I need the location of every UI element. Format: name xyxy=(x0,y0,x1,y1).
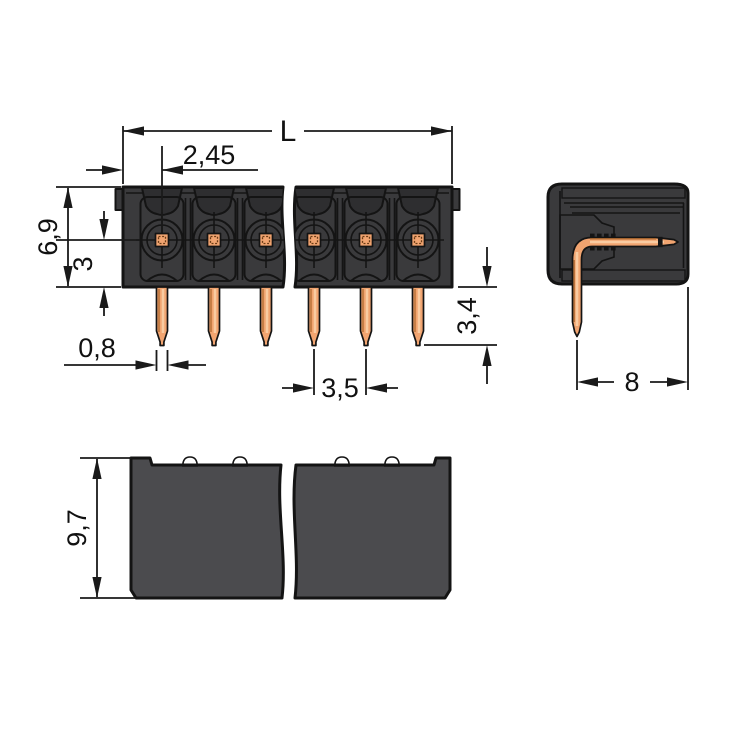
technical-drawing-page: L 2,45 6,9 3 0,8 3,5 xyxy=(0,0,750,750)
dim-label-housing-depth: 8 xyxy=(624,367,639,397)
side-view xyxy=(548,184,688,337)
solder-pin-5 xyxy=(361,287,372,346)
front-view xyxy=(116,187,460,346)
dimension-housing-depth: 8 xyxy=(577,287,688,397)
dimension-total-length: L xyxy=(123,115,452,184)
dim-label-pin-pitch: 3,5 xyxy=(321,373,359,403)
pin-tip-band xyxy=(658,237,663,247)
solder-pin-3 xyxy=(261,287,272,346)
bottom-housing-right-half xyxy=(294,458,450,598)
solder-pin-1 xyxy=(157,287,168,346)
bottom-view xyxy=(131,457,450,598)
dimension-overall-height: 9,7 xyxy=(62,458,136,598)
dimension-pin-pitch: 3,5 xyxy=(282,349,398,403)
connector-technical-drawing: L 2,45 6,9 3 0,8 3,5 xyxy=(0,0,750,750)
dimension-pin-width: 0,8 xyxy=(64,333,206,371)
bottom-housing-left-half xyxy=(131,458,283,598)
solder-pin-6 xyxy=(413,287,424,346)
dim-label-pin-protrusion: 3,4 xyxy=(452,297,482,335)
dim-label-total-length: L xyxy=(280,115,297,148)
dim-label-first-pin-offset: 2,45 xyxy=(183,140,236,170)
dim-label-housing-height: 6,9 xyxy=(33,218,63,256)
dim-label-pin-axis-to-bottom: 3 xyxy=(68,256,98,271)
solder-pin-2 xyxy=(209,287,220,346)
dim-label-overall-height: 9,7 xyxy=(62,509,92,547)
dim-label-pin-width: 0,8 xyxy=(78,333,116,363)
solder-pin-4 xyxy=(309,287,320,346)
